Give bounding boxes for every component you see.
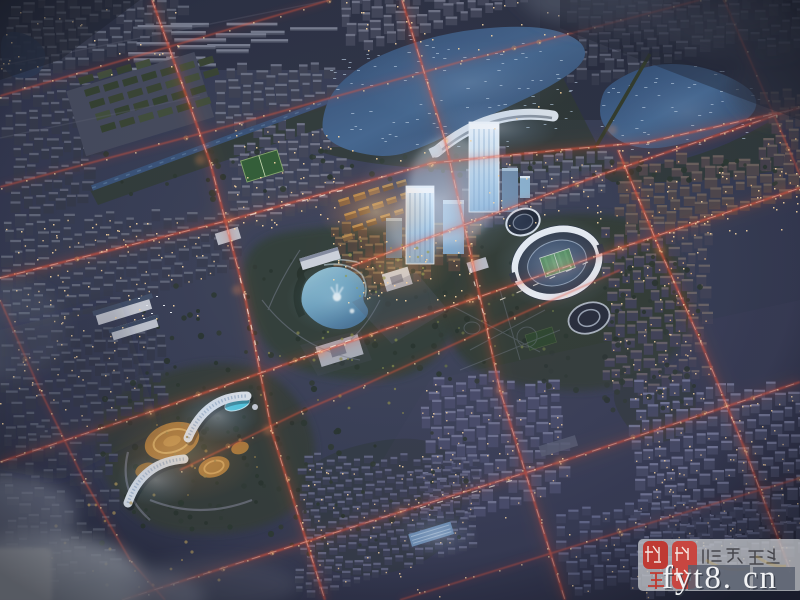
svg-text:fyt8. cn: fyt8. cn: [662, 560, 776, 596]
